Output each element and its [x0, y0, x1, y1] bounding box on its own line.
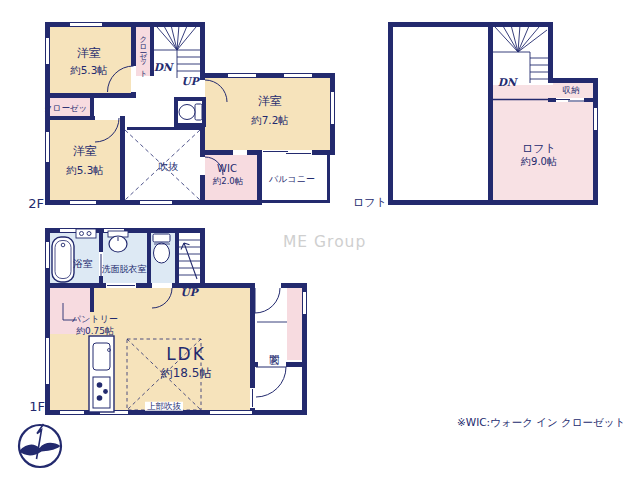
pantry-label-size: 約0.75帖	[76, 327, 114, 336]
wall-segment	[45, 410, 307, 415]
room-fill-porch	[287, 288, 302, 360]
wall-segment	[548, 22, 553, 83]
toilet-room-2f	[174, 97, 206, 127]
door-opening	[200, 157, 205, 175]
floor-label-2f: 2F	[28, 197, 44, 210]
upper-void-label: 上部吹抜	[145, 402, 183, 411]
room-fill-toilet-1f	[151, 233, 175, 283]
room-fill-washroom	[103, 233, 147, 283]
door-opening	[233, 150, 247, 155]
window	[284, 73, 312, 78]
room-label-bedroom-bottom-size: 約5.3帖	[66, 165, 104, 176]
room-label-bedroom-right-size: 約7.2帖	[251, 115, 289, 126]
window	[70, 22, 102, 27]
room-fill-bedroom-top	[48, 27, 131, 93]
window	[60, 228, 86, 233]
room-label-bedroom-bottom-name: 洋室	[73, 145, 97, 157]
closet-horizontal-label: クローゼット	[44, 104, 96, 113]
wall-segment	[388, 200, 598, 205]
pantry-label-name: パントリー	[72, 315, 118, 324]
ldk-label-size: 約18.5帖	[161, 367, 212, 379]
floor-plan-canvas: 洋室 約5.3帖 クローゼット DN UP 洋室 約7.2帖 クローゼット 洋室…	[0, 0, 640, 480]
closet-vertical-label: クローゼット	[139, 31, 147, 74]
room-label-bedroom-top-size: 約5.3帖	[70, 65, 108, 76]
window	[45, 132, 50, 162]
window	[140, 200, 172, 205]
wall-segment	[45, 22, 205, 27]
loft-room-label-name: ロフト	[522, 143, 556, 154]
wall-segment	[175, 231, 179, 283]
window	[70, 200, 96, 205]
stairs-up-label-1f: UP	[180, 287, 197, 298]
door-opening	[131, 66, 136, 92]
wall-segment	[45, 116, 95, 120]
window	[593, 108, 598, 130]
door-opening	[258, 362, 286, 367]
room-label-bedroom-top-name: 洋室	[77, 47, 101, 59]
balcony-label: バルコニー	[269, 175, 315, 184]
wic-label-size: 約2.0帖	[213, 177, 244, 186]
window	[330, 92, 335, 124]
wall-segment	[127, 127, 202, 130]
loft-room-label-size: 約9.0帖	[521, 157, 557, 167]
door-opening	[152, 283, 172, 288]
wall-segment	[200, 283, 252, 288]
wall-segment	[388, 22, 553, 27]
wall-segment	[200, 22, 205, 78]
window	[104, 228, 124, 233]
window	[100, 410, 128, 415]
watermark: ME Group	[283, 233, 366, 251]
room-label-bedroom-right-name: 洋室	[258, 95, 282, 107]
door-opening	[556, 98, 584, 102]
wall-segment	[388, 22, 393, 205]
window	[302, 292, 307, 314]
wall-segment	[548, 78, 598, 83]
window	[228, 73, 256, 78]
window	[45, 38, 50, 64]
wall-segment	[488, 22, 493, 205]
wic-footnote: ※WIC:ウォーク イン クローゼット	[457, 416, 625, 430]
washroom-label: 洗面脱衣室	[102, 265, 147, 274]
stairs-down-label-loft: DN	[498, 77, 517, 88]
ldk-label-name: LDK	[166, 346, 206, 363]
wall-segment	[120, 116, 125, 205]
window	[210, 410, 252, 415]
window	[45, 242, 50, 268]
void-label-2f: 吹抜	[158, 162, 178, 172]
wall-segment	[200, 73, 335, 78]
room-fill-bedroom-bottom	[48, 120, 120, 200]
window	[60, 410, 84, 415]
wall-segment	[147, 231, 151, 283]
door-opening	[250, 388, 255, 408]
wic-label-name: WIC	[217, 164, 237, 174]
wall-segment	[200, 228, 205, 288]
floor-label-loft: ロフト	[353, 197, 387, 208]
stairs-down-label-2f: DN	[154, 62, 173, 73]
storage-label: 収納	[563, 86, 580, 95]
door-opening	[255, 283, 281, 288]
window	[45, 338, 50, 384]
floor-label-1f: 1F	[29, 400, 45, 413]
stairs-up-label-2f: UP	[181, 76, 198, 87]
bathroom-label: 浴室	[73, 259, 93, 269]
door-opening	[106, 283, 136, 288]
wall-segment	[90, 288, 94, 312]
